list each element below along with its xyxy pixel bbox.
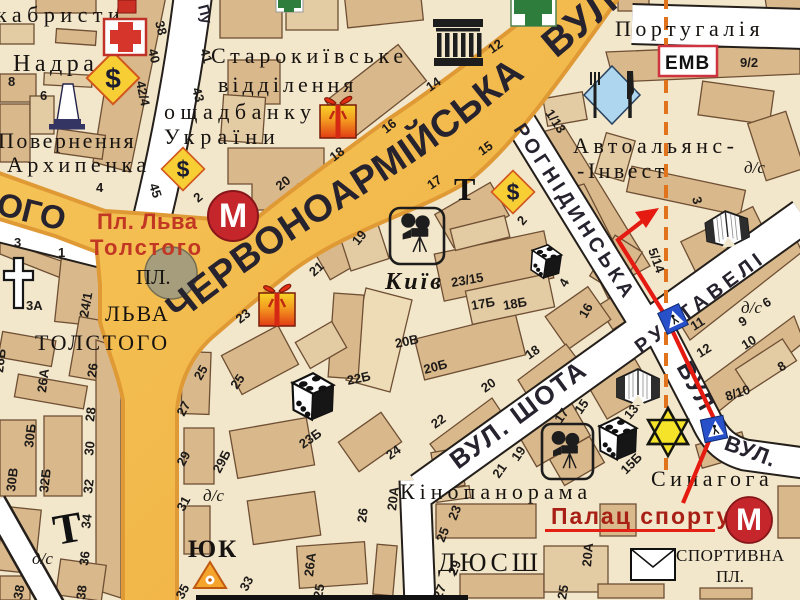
svg-text:України: України xyxy=(164,124,281,149)
svg-text:Кінопанорама: Кінопанорама xyxy=(400,479,592,504)
svg-text:д/с: д/с xyxy=(32,549,53,568)
svg-text:1: 1 xyxy=(58,245,65,260)
svg-text:ПЛ.: ПЛ. xyxy=(716,567,744,586)
svg-text:36: 36 xyxy=(76,550,93,566)
svg-text:28: 28 xyxy=(82,406,99,422)
svg-text:32: 32 xyxy=(80,478,97,494)
svg-text:Київ: Київ xyxy=(384,269,444,295)
svg-text:Португалія: Португалія xyxy=(615,16,764,41)
svg-text:д/с: д/с xyxy=(741,298,762,317)
svg-text:д/с: д/с xyxy=(203,486,224,505)
svg-text:Синагога: Синагога xyxy=(651,466,773,491)
svg-text:д/с: д/с xyxy=(744,158,765,177)
svg-text:Повернення: Повернення xyxy=(0,128,136,153)
svg-text:СПОРТИВНА: СПОРТИВНА xyxy=(676,546,785,565)
svg-text:25: 25 xyxy=(554,584,571,600)
svg-text:26А: 26А xyxy=(301,551,319,577)
svg-text:Т: Т xyxy=(454,171,475,207)
svg-text:ЛЬВА: ЛЬВА xyxy=(105,301,170,326)
svg-text:-Інвест: -Інвест xyxy=(577,158,668,183)
svg-text:відділення: відділення xyxy=(218,72,357,97)
svg-text:38: 38 xyxy=(10,584,27,600)
svg-text:Толстого: Толстого xyxy=(90,235,203,260)
svg-text:30Б: 30Б xyxy=(21,423,39,448)
svg-text:30В: 30В xyxy=(3,467,21,493)
svg-text:9/2: 9/2 xyxy=(740,55,758,70)
svg-text:Палац спорту: Палац спорту xyxy=(551,503,731,529)
svg-text:4: 4 xyxy=(96,180,104,195)
svg-text:ЮК: ЮК xyxy=(188,536,238,563)
svg-text:26А: 26А xyxy=(34,367,52,393)
svg-text:30: 30 xyxy=(81,440,98,456)
svg-text:3А: 3А xyxy=(26,298,43,313)
svg-text:Архипенка: Архипенка xyxy=(7,152,151,177)
svg-text:Автоальянс-: Автоальянс- xyxy=(573,133,739,158)
svg-text:Старокиївське: Старокиївське xyxy=(211,43,408,68)
svg-text:Надра: Надра xyxy=(13,51,98,77)
svg-text:Пл. Льва: Пл. Льва xyxy=(97,209,198,234)
svg-text:26: 26 xyxy=(354,507,371,523)
svg-text:6: 6 xyxy=(40,88,47,103)
svg-text:ЕМВ: ЕМВ xyxy=(665,53,710,74)
svg-text:ПЛ.: ПЛ. xyxy=(136,265,171,289)
svg-text:38: 38 xyxy=(73,584,90,600)
svg-text:32Б: 32Б xyxy=(36,468,54,493)
svg-text:26: 26 xyxy=(84,362,101,378)
svg-text:ощадбанку: ощадбанку xyxy=(164,99,317,124)
svg-text:20А: 20А xyxy=(384,485,402,511)
svg-text:20А: 20А xyxy=(579,542,596,568)
svg-text:8: 8 xyxy=(8,74,15,89)
svg-text:ТОЛСТОГО: ТОЛСТОГО xyxy=(35,330,170,355)
svg-text:3: 3 xyxy=(14,235,21,250)
